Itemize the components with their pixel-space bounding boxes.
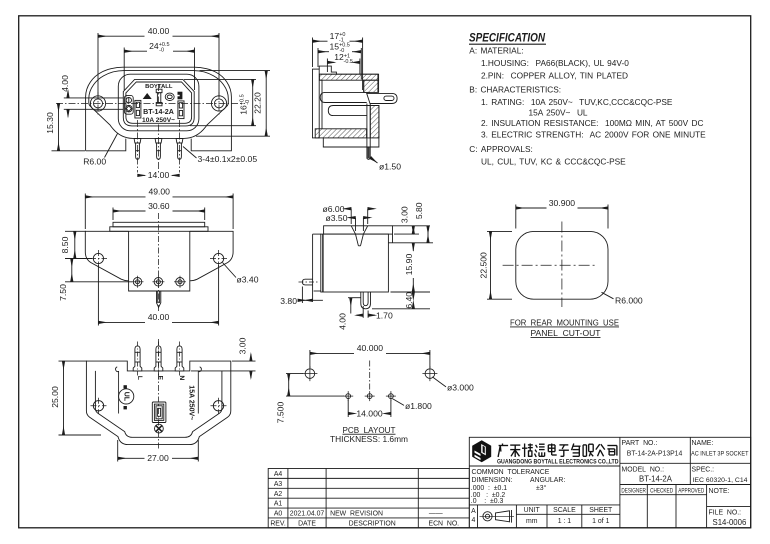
svg-text:15.90: 15.90 — [404, 254, 414, 276]
svg-text:THICKNESS: 1.6mm: THICKNESS: 1.6mm — [330, 434, 408, 444]
svg-text:——: —— — [429, 511, 443, 518]
svg-text:25.00: 25.00 — [50, 386, 60, 408]
svg-text:30.900: 30.900 — [549, 198, 576, 208]
svg-text:AC INLET 3P SOCKET: AC INLET 3P SOCKET — [691, 450, 749, 457]
svg-text:14.00: 14.00 — [148, 170, 170, 180]
svg-text:BT-14-2A: BT-14-2A — [639, 474, 673, 483]
svg-text:30.60: 30.60 — [148, 201, 170, 211]
svg-text:BT-14-2A-P13P14: BT-14-2A-P13P14 — [627, 450, 683, 457]
svg-text:SPEC.:: SPEC.: — [692, 467, 715, 474]
svg-text:ECN NO.: ECN NO. — [428, 520, 459, 527]
svg-text:8.50: 8.50 — [60, 236, 70, 253]
svg-text:5.80: 5.80 — [414, 202, 424, 219]
svg-text:R6.000: R6.000 — [615, 295, 643, 305]
svg-text:A3: A3 — [274, 481, 283, 488]
svg-text:4: 4 — [471, 517, 475, 524]
svg-text:FOR REAR MOUNTING USE: FOR REAR MOUNTING USE — [510, 318, 619, 328]
svg-text:10A 250V~: 10A 250V~ — [142, 117, 175, 124]
svg-text:IEC 60320-1, C14: IEC 60320-1, C14 — [693, 477, 748, 484]
svg-text:PANEL CUT-OUT: PANEL CUT-OUT — [531, 328, 602, 338]
svg-text:3. ELECTRIC STRENGTH: AC 2000: 3. ELECTRIC STRENGTH: AC 2000V FOR ONE M… — [481, 129, 706, 139]
svg-text:A2: A2 — [274, 491, 283, 498]
svg-text:DESIGNER: DESIGNER — [621, 488, 646, 495]
svg-text:ø3.50: ø3.50 — [326, 213, 348, 223]
svg-text:GUANGDONG BOYTALL ELECTRONICS: GUANGDONG BOYTALL ELECTRONICS CO.,LTD — [497, 459, 619, 466]
svg-text:DATE: DATE — [298, 520, 316, 527]
svg-text:14.000: 14.000 — [356, 408, 383, 418]
svg-text:UL, CUL, TUV, KC & CCC&CQC-PSE: UL, CUL, TUV, KC & CCC&CQC-PSE — [481, 156, 626, 166]
svg-text:DIMENSION:: DIMENSION: — [472, 477, 513, 484]
svg-text:16+0.5-0: 16+0.5-0 — [239, 94, 252, 114]
svg-text:A1: A1 — [274, 501, 283, 508]
svg-text:PART NO.:: PART NO.: — [622, 440, 658, 447]
svg-text:ANGULAR:: ANGULAR: — [530, 477, 565, 484]
svg-text:7.500: 7.500 — [275, 402, 285, 424]
svg-text:NAME:: NAME: — [692, 440, 714, 447]
svg-text:REV.: REV. — [270, 520, 286, 527]
svg-text:A: A — [471, 508, 476, 515]
svg-text:2021.04.07: 2021.04.07 — [290, 511, 325, 518]
svg-text:R6.00: R6.00 — [83, 157, 106, 167]
svg-text:24+0.5-0: 24+0.5-0 — [149, 41, 169, 54]
svg-text:3-4±0.1x2±0.05: 3-4±0.1x2±0.05 — [198, 154, 258, 164]
svg-text:4.00: 4.00 — [60, 75, 70, 92]
svg-text:MODEL NO.:: MODEL NO.: — [622, 467, 665, 474]
svg-text:C: APPROVALS:: C: APPROVALS: — [469, 144, 533, 154]
svg-text:SCALE: SCALE — [553, 507, 576, 514]
svg-text:ø3.40: ø3.40 — [237, 275, 259, 285]
svg-text:E: E — [157, 376, 164, 381]
svg-text:mm: mm — [526, 518, 538, 525]
svg-text:DESCRIPTION: DESCRIPTION — [349, 520, 396, 527]
svg-text:ø3.000: ø3.000 — [447, 382, 474, 392]
svg-text:1.HOUSING: PA66(BLACK), UL 94: 1.HOUSING: PA66(BLACK), UL 94V-0 — [481, 58, 629, 68]
svg-text:40.000: 40.000 — [357, 343, 384, 353]
svg-text:ø1.50: ø1.50 — [379, 162, 401, 172]
svg-text:1 : 1: 1 : 1 — [558, 518, 572, 525]
svg-text:UNIT: UNIT — [524, 507, 541, 514]
svg-text:22.500: 22.500 — [479, 252, 489, 279]
svg-text:BT-14-2A: BT-14-2A — [143, 108, 174, 116]
svg-text:APPROVED: APPROVED — [678, 488, 704, 495]
svg-text:1. RATING: 10A 250V~ TUV,KC,: 1. RATING: 10A 250V~ TUV,KC,CCC&CQC-PSE — [481, 97, 673, 107]
svg-text:7.50: 7.50 — [58, 284, 68, 301]
svg-text:N: N — [178, 375, 185, 380]
svg-text:1.70: 1.70 — [376, 310, 393, 320]
svg-text:.0 : ±0.3: .0 : ±0.3 — [471, 498, 504, 505]
svg-text:6.40: 6.40 — [404, 292, 414, 309]
svg-text:3.80: 3.80 — [280, 296, 297, 306]
svg-text:CHECKED: CHECKED — [650, 488, 673, 495]
svg-text:B: CHARACTERISTICS:: B: CHARACTERISTICS: — [469, 85, 561, 95]
svg-text:FILE NO.:: FILE NO.: — [709, 510, 742, 517]
svg-text:2.PIN: COPPER ALLOY, TIN PLAT: 2.PIN: COPPER ALLOY, TIN PLATED — [481, 70, 628, 80]
svg-text:SPECIFICATION: SPECIFICATION — [469, 31, 545, 45]
svg-text:1 of 1: 1 of 1 — [592, 518, 609, 525]
svg-text:49.00: 49.00 — [148, 187, 170, 197]
svg-text:A0: A0 — [274, 511, 283, 518]
svg-text:L: L — [136, 376, 143, 380]
svg-text:2. INSULATION RESISTANCE: 100: 2. INSULATION RESISTANCE: 100MΩ MIN, AT … — [481, 118, 703, 128]
svg-text:A4: A4 — [274, 471, 283, 478]
svg-text:27.00: 27.00 — [147, 453, 169, 463]
svg-text:4.00: 4.00 — [337, 313, 347, 330]
svg-text:COMMON TOLERANCE: COMMON TOLERANCE — [472, 469, 550, 476]
svg-text:SHEET: SHEET — [589, 507, 613, 514]
svg-text:NOTE:: NOTE: — [709, 488, 730, 495]
svg-text:15.30: 15.30 — [45, 112, 55, 134]
svg-text:40.00: 40.00 — [148, 26, 170, 36]
svg-text:15A 250V~ UL: 15A 250V~ UL — [529, 107, 588, 117]
svg-text:S14-0006: S14-0006 — [713, 518, 747, 527]
svg-text:40.00: 40.00 — [148, 312, 170, 322]
svg-text:UL: UL — [123, 392, 130, 402]
svg-text:3.00: 3.00 — [399, 206, 409, 223]
svg-text:A: MATERIAL:: A: MATERIAL: — [469, 46, 523, 56]
svg-text:NEW REVISION: NEW REVISION — [330, 511, 383, 518]
svg-text:±3°: ±3° — [536, 484, 547, 492]
svg-text:3.00: 3.00 — [237, 337, 247, 354]
svg-text:ø1.800: ø1.800 — [405, 401, 432, 411]
svg-text:12+1-0.5: 12+1-0.5 — [334, 52, 353, 65]
svg-text:15A 250V~: 15A 250V~ — [187, 385, 194, 420]
svg-text:22.20: 22.20 — [253, 92, 263, 114]
